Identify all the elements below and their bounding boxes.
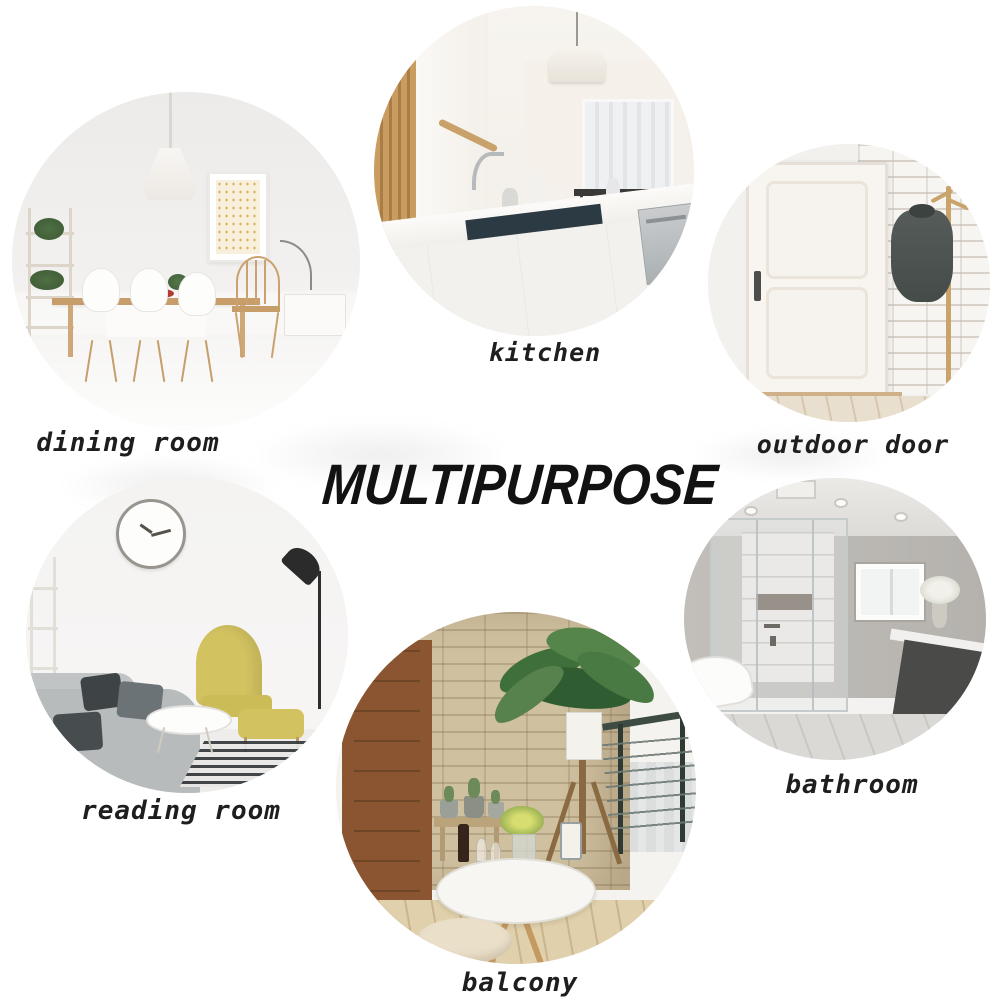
pendant-lamp-cord bbox=[169, 92, 172, 150]
page-title: MULTIPURPOSE bbox=[320, 452, 720, 518]
dining-chair bbox=[130, 268, 168, 312]
ottoman bbox=[238, 709, 304, 739]
round-table bbox=[436, 858, 596, 924]
jacket-hood bbox=[909, 204, 935, 218]
front-door bbox=[746, 162, 888, 398]
wall-art-print bbox=[216, 180, 260, 254]
floor-lamp-pole bbox=[318, 571, 321, 709]
multipurpose-collage: dining room kitchen bbox=[0, 0, 1000, 1000]
recessed-light bbox=[834, 498, 848, 508]
door-handle bbox=[754, 271, 761, 301]
coffee-table bbox=[146, 705, 232, 735]
plant-bench bbox=[434, 818, 504, 827]
dishwasher bbox=[638, 203, 694, 285]
window-mullion bbox=[890, 569, 893, 615]
bathroom-photo bbox=[684, 478, 986, 760]
throw-pillow bbox=[53, 711, 104, 752]
windsor-chair bbox=[236, 256, 280, 308]
flower-bouquet bbox=[500, 806, 544, 836]
railing-cables bbox=[602, 736, 696, 840]
balcony-photo bbox=[336, 612, 696, 964]
wine-bottle bbox=[458, 824, 469, 862]
wine-glass bbox=[476, 838, 487, 862]
bathroom-window bbox=[856, 564, 924, 620]
windsor-chair-seat bbox=[232, 306, 280, 312]
kitchen-photo bbox=[374, 6, 694, 336]
cactus bbox=[491, 790, 500, 804]
dining-room-photo bbox=[12, 92, 360, 430]
ladder-shelf bbox=[26, 208, 74, 338]
pendant-lamp-shade bbox=[549, 46, 605, 82]
bench-leg bbox=[440, 827, 445, 861]
bathroom-floor bbox=[684, 714, 986, 760]
reading-room-photo bbox=[26, 477, 348, 793]
outdoor-door-label: outdoor door bbox=[757, 430, 950, 459]
sideboard bbox=[284, 294, 346, 336]
cactus-pot bbox=[464, 796, 484, 818]
dishwasher-handle bbox=[646, 215, 686, 224]
glass-panel-edge bbox=[812, 520, 814, 710]
clock-minute-hand bbox=[151, 529, 171, 537]
flower-bouquet bbox=[920, 576, 960, 604]
dining-room-label: dining room bbox=[36, 428, 219, 458]
cactus-pot bbox=[440, 800, 458, 818]
recessed-light bbox=[894, 512, 908, 522]
door-panel-upper bbox=[766, 181, 868, 279]
clock-hour-hand bbox=[140, 524, 153, 534]
wingback-chair bbox=[196, 625, 262, 705]
ladder-plant bbox=[34, 218, 64, 240]
shower-niche bbox=[756, 594, 812, 610]
cactus bbox=[444, 786, 454, 802]
ceiling-vent bbox=[776, 480, 816, 499]
recessed-light bbox=[744, 506, 758, 516]
dining-chair bbox=[178, 272, 216, 316]
outdoor-door-photo bbox=[708, 144, 990, 422]
bathroom-label: bathroom bbox=[785, 770, 918, 800]
balcony-label: balcony bbox=[462, 968, 579, 998]
table-leg bbox=[68, 305, 73, 357]
glass-panel-edge bbox=[756, 520, 758, 710]
stool bbox=[416, 918, 512, 964]
cactus bbox=[468, 778, 480, 798]
dining-chair bbox=[82, 268, 120, 312]
hanging-jacket bbox=[891, 210, 953, 302]
shower-control bbox=[770, 636, 776, 646]
wall-art-frame bbox=[208, 172, 268, 262]
kitchen-window bbox=[582, 99, 674, 193]
kitchen-label: kitchen bbox=[489, 338, 601, 367]
pendant-lamp-chain bbox=[576, 6, 578, 48]
candle-lantern bbox=[560, 822, 582, 860]
white-planter bbox=[566, 712, 602, 760]
wall-clock bbox=[116, 499, 186, 569]
striped-rug bbox=[180, 741, 320, 787]
entry-floor bbox=[708, 396, 990, 422]
reading-room-label: reading room bbox=[81, 796, 281, 826]
shower-valve bbox=[764, 624, 780, 628]
ladder-plant bbox=[30, 270, 64, 290]
door-panel-lower bbox=[766, 287, 868, 379]
